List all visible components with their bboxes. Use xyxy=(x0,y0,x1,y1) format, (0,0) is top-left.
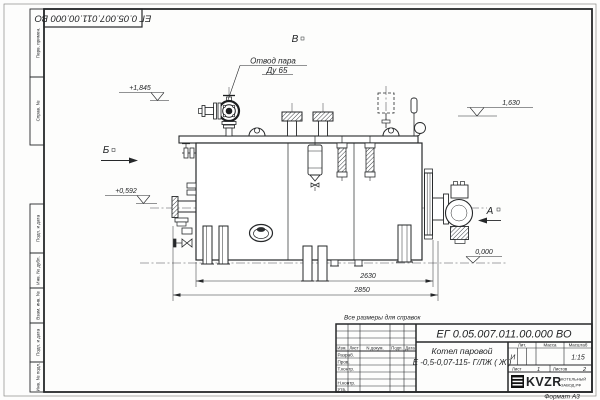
view-letter-top: В xyxy=(292,34,299,45)
margin-label: Справ. № xyxy=(36,101,41,122)
burner-assembly xyxy=(425,169,473,244)
sheet-number: 1 xyxy=(537,367,540,373)
scale-value: 1:15 xyxy=(571,355,585,362)
left-drain-valve xyxy=(174,228,193,247)
role-razrab: Разраб. xyxy=(338,353,355,358)
drawing-canvas: Перв. примен. Справ. № Подп. и дата Инв.… xyxy=(0,0,600,400)
lit-label: Лит. xyxy=(518,343,526,348)
role-prov: Пров. xyxy=(338,360,350,365)
col-sign: Подп. xyxy=(391,346,402,351)
lit-value: И xyxy=(510,355,516,362)
title-column-headers: Изм. Лист N докум. Подп. Дата xyxy=(337,346,415,351)
margin-label: Перв. примен. xyxy=(36,28,41,59)
logo-text: KVZR xyxy=(526,375,562,389)
steam-outlet-label-line2: Ду 65 xyxy=(266,66,288,75)
col-list: Лист xyxy=(349,346,358,351)
col-doc: N докум. xyxy=(366,346,383,351)
scale-label: Масштаб xyxy=(569,343,588,348)
elevation-ground: 0,000 xyxy=(475,249,493,256)
margin-label: Инв. № дубл. xyxy=(36,256,41,284)
view-letter-right: А xyxy=(486,206,494,217)
product-name-line1: Котел паровой xyxy=(432,346,493,356)
dimension-inner: 2630 xyxy=(359,273,376,280)
col-izm: Изм. xyxy=(337,346,346,351)
mass-label: Масса xyxy=(544,343,558,348)
elevation-left-lower: +0,592 xyxy=(115,188,137,195)
margin-label: Подп. и дата xyxy=(36,215,41,243)
product-name-line2: Е -0,5-0,07-115- Г/ЛЖ ( Ж ) xyxy=(413,358,512,367)
bottom-drain-stubs xyxy=(330,260,363,266)
logo-subtext-2: ЗАВОД.РФ xyxy=(561,383,581,388)
margin-label: Подп. и дата xyxy=(36,329,41,357)
logo-subtext-1: КОТЕЛЬНЫЙ xyxy=(561,377,586,382)
role-utv: Утв. xyxy=(338,387,347,392)
steam-outlet-valve xyxy=(199,96,240,137)
sheets-label: Листов xyxy=(553,367,568,372)
engineering-drawing-sheet: Перв. примен. Справ. № Подп. и дата Инв.… xyxy=(0,0,600,400)
col-date: Дата xyxy=(405,346,415,351)
margin-label: Взам. инв. № xyxy=(36,291,41,320)
role-tkontr: Т.контр. xyxy=(338,367,355,372)
boiler-body xyxy=(179,136,422,260)
title-designation: ЕГ 0.05.007.011.00.000 ВО xyxy=(436,329,572,341)
steam-outlet-label-line1: Отвод пара xyxy=(250,57,296,66)
top-stamp-designation: ЕГ 0.05.007.011.00.000 ВО xyxy=(34,13,151,24)
lever-and-siphon-tube xyxy=(411,98,426,136)
role-nkontr: Н.контр. xyxy=(338,381,356,386)
format-note: Формат А3 xyxy=(544,394,580,400)
view-letter-left: Б xyxy=(103,145,110,156)
margin-cell-labels: Перв. примен. Справ. № Подп. и дата Инв.… xyxy=(36,28,41,392)
margin-label: Инв. № подл. xyxy=(36,363,41,392)
elevation-right-upper: 1,630 xyxy=(502,100,520,107)
left-wall-fittings xyxy=(182,144,196,196)
company-logo: KVZR КОТЕЛЬНЫЙ ЗАВОД.РФ xyxy=(511,375,586,389)
left-elbow-flange xyxy=(172,197,196,227)
sheet-label: Лист xyxy=(512,367,522,372)
top-nozzles xyxy=(282,112,333,136)
dimension-outer: 2850 xyxy=(353,287,370,294)
top-plate xyxy=(179,136,418,143)
reference-note: Все размеры для справок xyxy=(344,314,422,322)
lit-mass-scale: Лит. Масса Масштаб И 1:15 xyxy=(510,343,588,362)
elevation-valve-top: +1,845 xyxy=(129,85,151,92)
